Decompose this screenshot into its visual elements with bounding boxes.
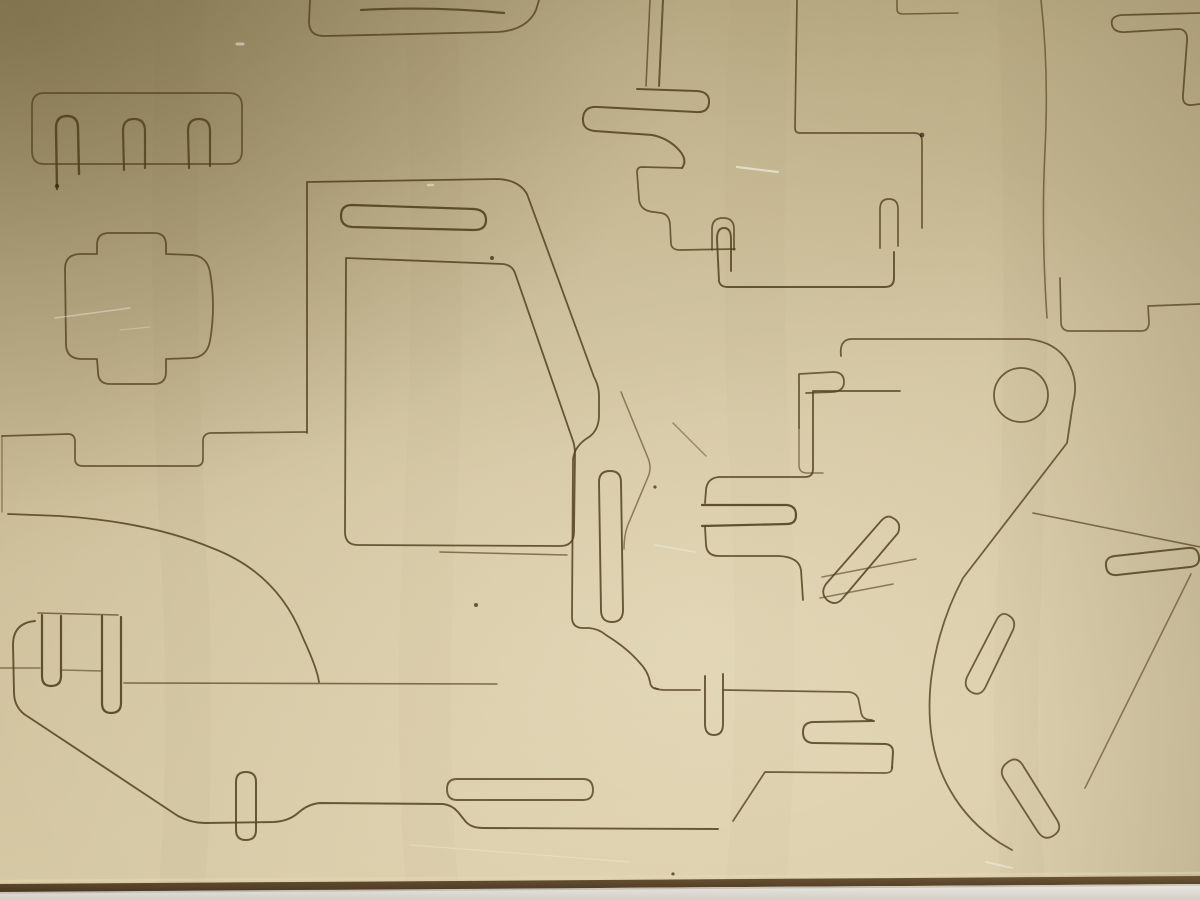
burn-mark: [55, 184, 59, 188]
laser-cut-plywood-photo: [0, 0, 1200, 900]
plywood-sheet-photo: [0, 0, 1200, 900]
burn-mark: [671, 872, 674, 875]
wood-shadow-right: [0, 0, 1200, 888]
wood-surface: [0, 0, 1200, 888]
burn-mark: [490, 256, 494, 260]
burn-mark: [653, 485, 656, 488]
burn-mark: [474, 603, 478, 607]
cut-line: [124, 683, 497, 684]
burn-mark: [920, 133, 925, 138]
